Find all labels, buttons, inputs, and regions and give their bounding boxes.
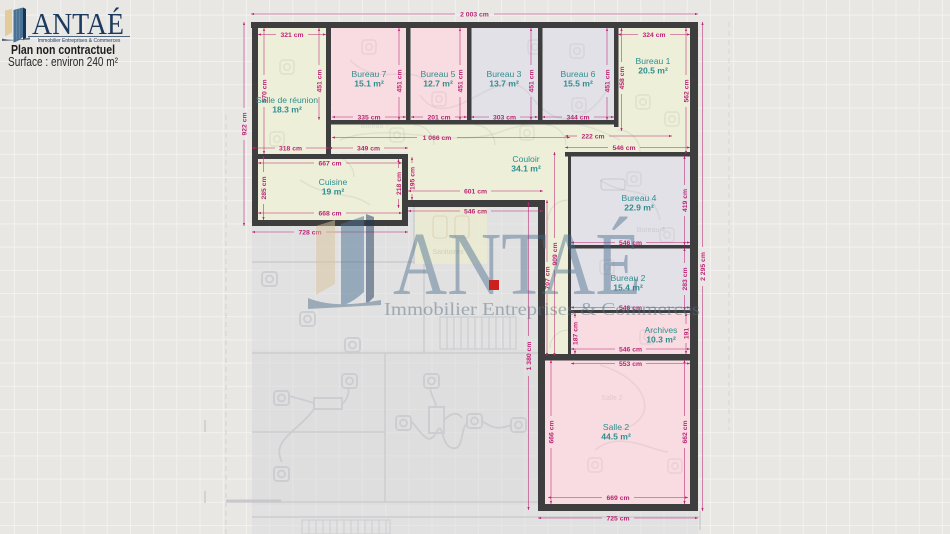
svg-text:ANTAÉ: ANTAÉ	[32, 6, 124, 41]
svg-text:15.1 m²: 15.1 m²	[354, 78, 384, 88]
svg-text:10.3 m²: 10.3 m²	[646, 334, 676, 344]
svg-text:666 cm: 666 cm	[549, 420, 556, 443]
svg-text:546 cm: 546 cm	[612, 145, 635, 152]
svg-text:218 cm: 218 cm	[396, 172, 403, 195]
svg-text:22.9 m²: 22.9 m²	[624, 202, 654, 212]
svg-text:922 cm: 922 cm	[242, 112, 249, 135]
svg-text:Salle 2: Salle 2	[601, 395, 623, 402]
svg-text:44.5 m²: 44.5 m²	[601, 431, 631, 441]
svg-text:546 cm: 546 cm	[619, 347, 642, 354]
svg-text:Surface : environ 240 m²: Surface : environ 240 m²	[8, 55, 118, 69]
svg-text:1 066 cm: 1 066 cm	[423, 135, 452, 142]
svg-text:191: 191	[684, 328, 691, 340]
svg-text:34.1 m²: 34.1 m²	[511, 163, 541, 173]
svg-text:451 cm: 451 cm	[317, 69, 324, 92]
svg-text:318 cm: 318 cm	[279, 146, 302, 153]
svg-text:451 cm: 451 cm	[397, 69, 404, 92]
svg-text:20.5 m²: 20.5 m²	[638, 65, 668, 75]
svg-text:285 cm: 285 cm	[261, 176, 268, 199]
svg-text:324 cm: 324 cm	[642, 32, 665, 39]
svg-text:195 cm: 195 cm	[410, 167, 417, 190]
svg-text:562 cm: 562 cm	[684, 79, 691, 102]
svg-text:451 cm: 451 cm	[529, 69, 536, 92]
svg-text:662 cm: 662 cm	[682, 420, 689, 443]
svg-text:668 cm: 668 cm	[318, 211, 341, 218]
svg-text:12.7 m²: 12.7 m²	[423, 78, 453, 88]
svg-text:303 cm: 303 cm	[493, 115, 516, 122]
svg-text:13.7 m²: 13.7 m²	[489, 78, 519, 88]
svg-text:2 295 cm: 2 295 cm	[700, 252, 707, 281]
svg-text:344 cm: 344 cm	[566, 115, 589, 122]
svg-text:187 cm: 187 cm	[573, 322, 580, 345]
svg-text:19 m²: 19 m²	[322, 186, 345, 196]
svg-text:2 003 cm: 2 003 cm	[460, 12, 489, 19]
svg-text:419 cm: 419 cm	[682, 189, 689, 212]
svg-text:601 cm: 601 cm	[464, 189, 487, 196]
svg-text:669 cm: 669 cm	[606, 495, 629, 502]
svg-text:222 cm: 222 cm	[581, 134, 604, 141]
svg-text:1 380 cm: 1 380 cm	[526, 342, 533, 371]
svg-text:18.3 m²: 18.3 m²	[272, 104, 302, 114]
svg-text:725 cm: 725 cm	[606, 516, 629, 523]
svg-text:15.5 m²: 15.5 m²	[563, 78, 593, 88]
svg-text:451 cm: 451 cm	[458, 69, 465, 92]
svg-text:283 cm: 283 cm	[682, 267, 689, 290]
svg-text:451 cm: 451 cm	[605, 69, 612, 92]
svg-text:201 cm: 201 cm	[427, 115, 450, 122]
svg-text:553 cm: 553 cm	[619, 361, 642, 368]
svg-text:Immobilier Entreprises & Comme: Immobilier Entreprises & Commerces	[384, 299, 700, 319]
svg-text:321 cm: 321 cm	[280, 32, 303, 39]
svg-text:667 cm: 667 cm	[318, 161, 341, 168]
svg-text:349 cm: 349 cm	[357, 146, 380, 153]
svg-text:458 cm: 458 cm	[619, 66, 626, 89]
svg-text:335 cm: 335 cm	[357, 115, 380, 122]
